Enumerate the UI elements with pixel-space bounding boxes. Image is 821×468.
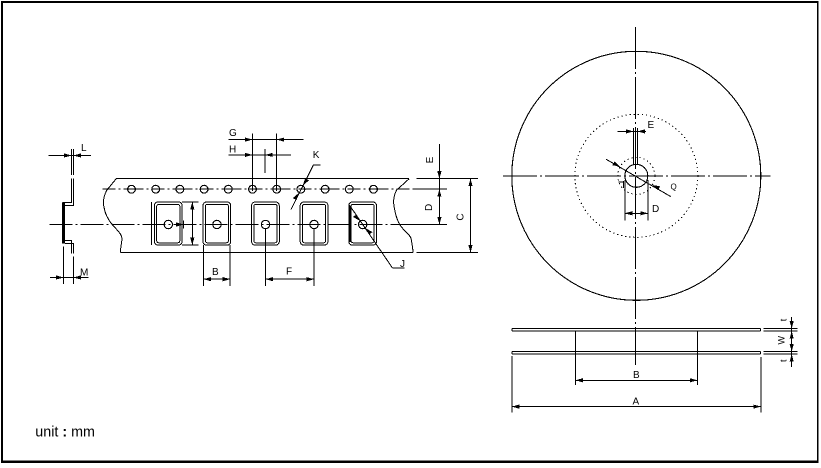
svg-text:D: D — [424, 204, 435, 211]
svg-text:A: A — [633, 396, 640, 407]
svg-text:H: H — [229, 144, 236, 155]
svg-text:G: G — [229, 128, 237, 139]
svg-text:t: t — [778, 318, 788, 321]
svg-text:E: E — [648, 120, 655, 131]
svg-text:C: C — [456, 213, 467, 220]
svg-text:Q: Q — [671, 183, 677, 192]
svg-text:B: B — [212, 267, 219, 278]
svg-text:D: D — [652, 204, 659, 215]
svg-text:W: W — [776, 335, 786, 344]
svg-text:B: B — [633, 370, 640, 381]
svg-text:unit : mm: unit : mm — [35, 425, 95, 441]
svg-text:L: L — [81, 143, 87, 154]
svg-text:t: t — [778, 359, 788, 362]
svg-text:K: K — [313, 150, 320, 161]
svg-text:J: J — [400, 259, 405, 270]
svg-text:F: F — [286, 267, 292, 278]
svg-text:M: M — [80, 267, 88, 278]
svg-text:E: E — [425, 156, 436, 163]
